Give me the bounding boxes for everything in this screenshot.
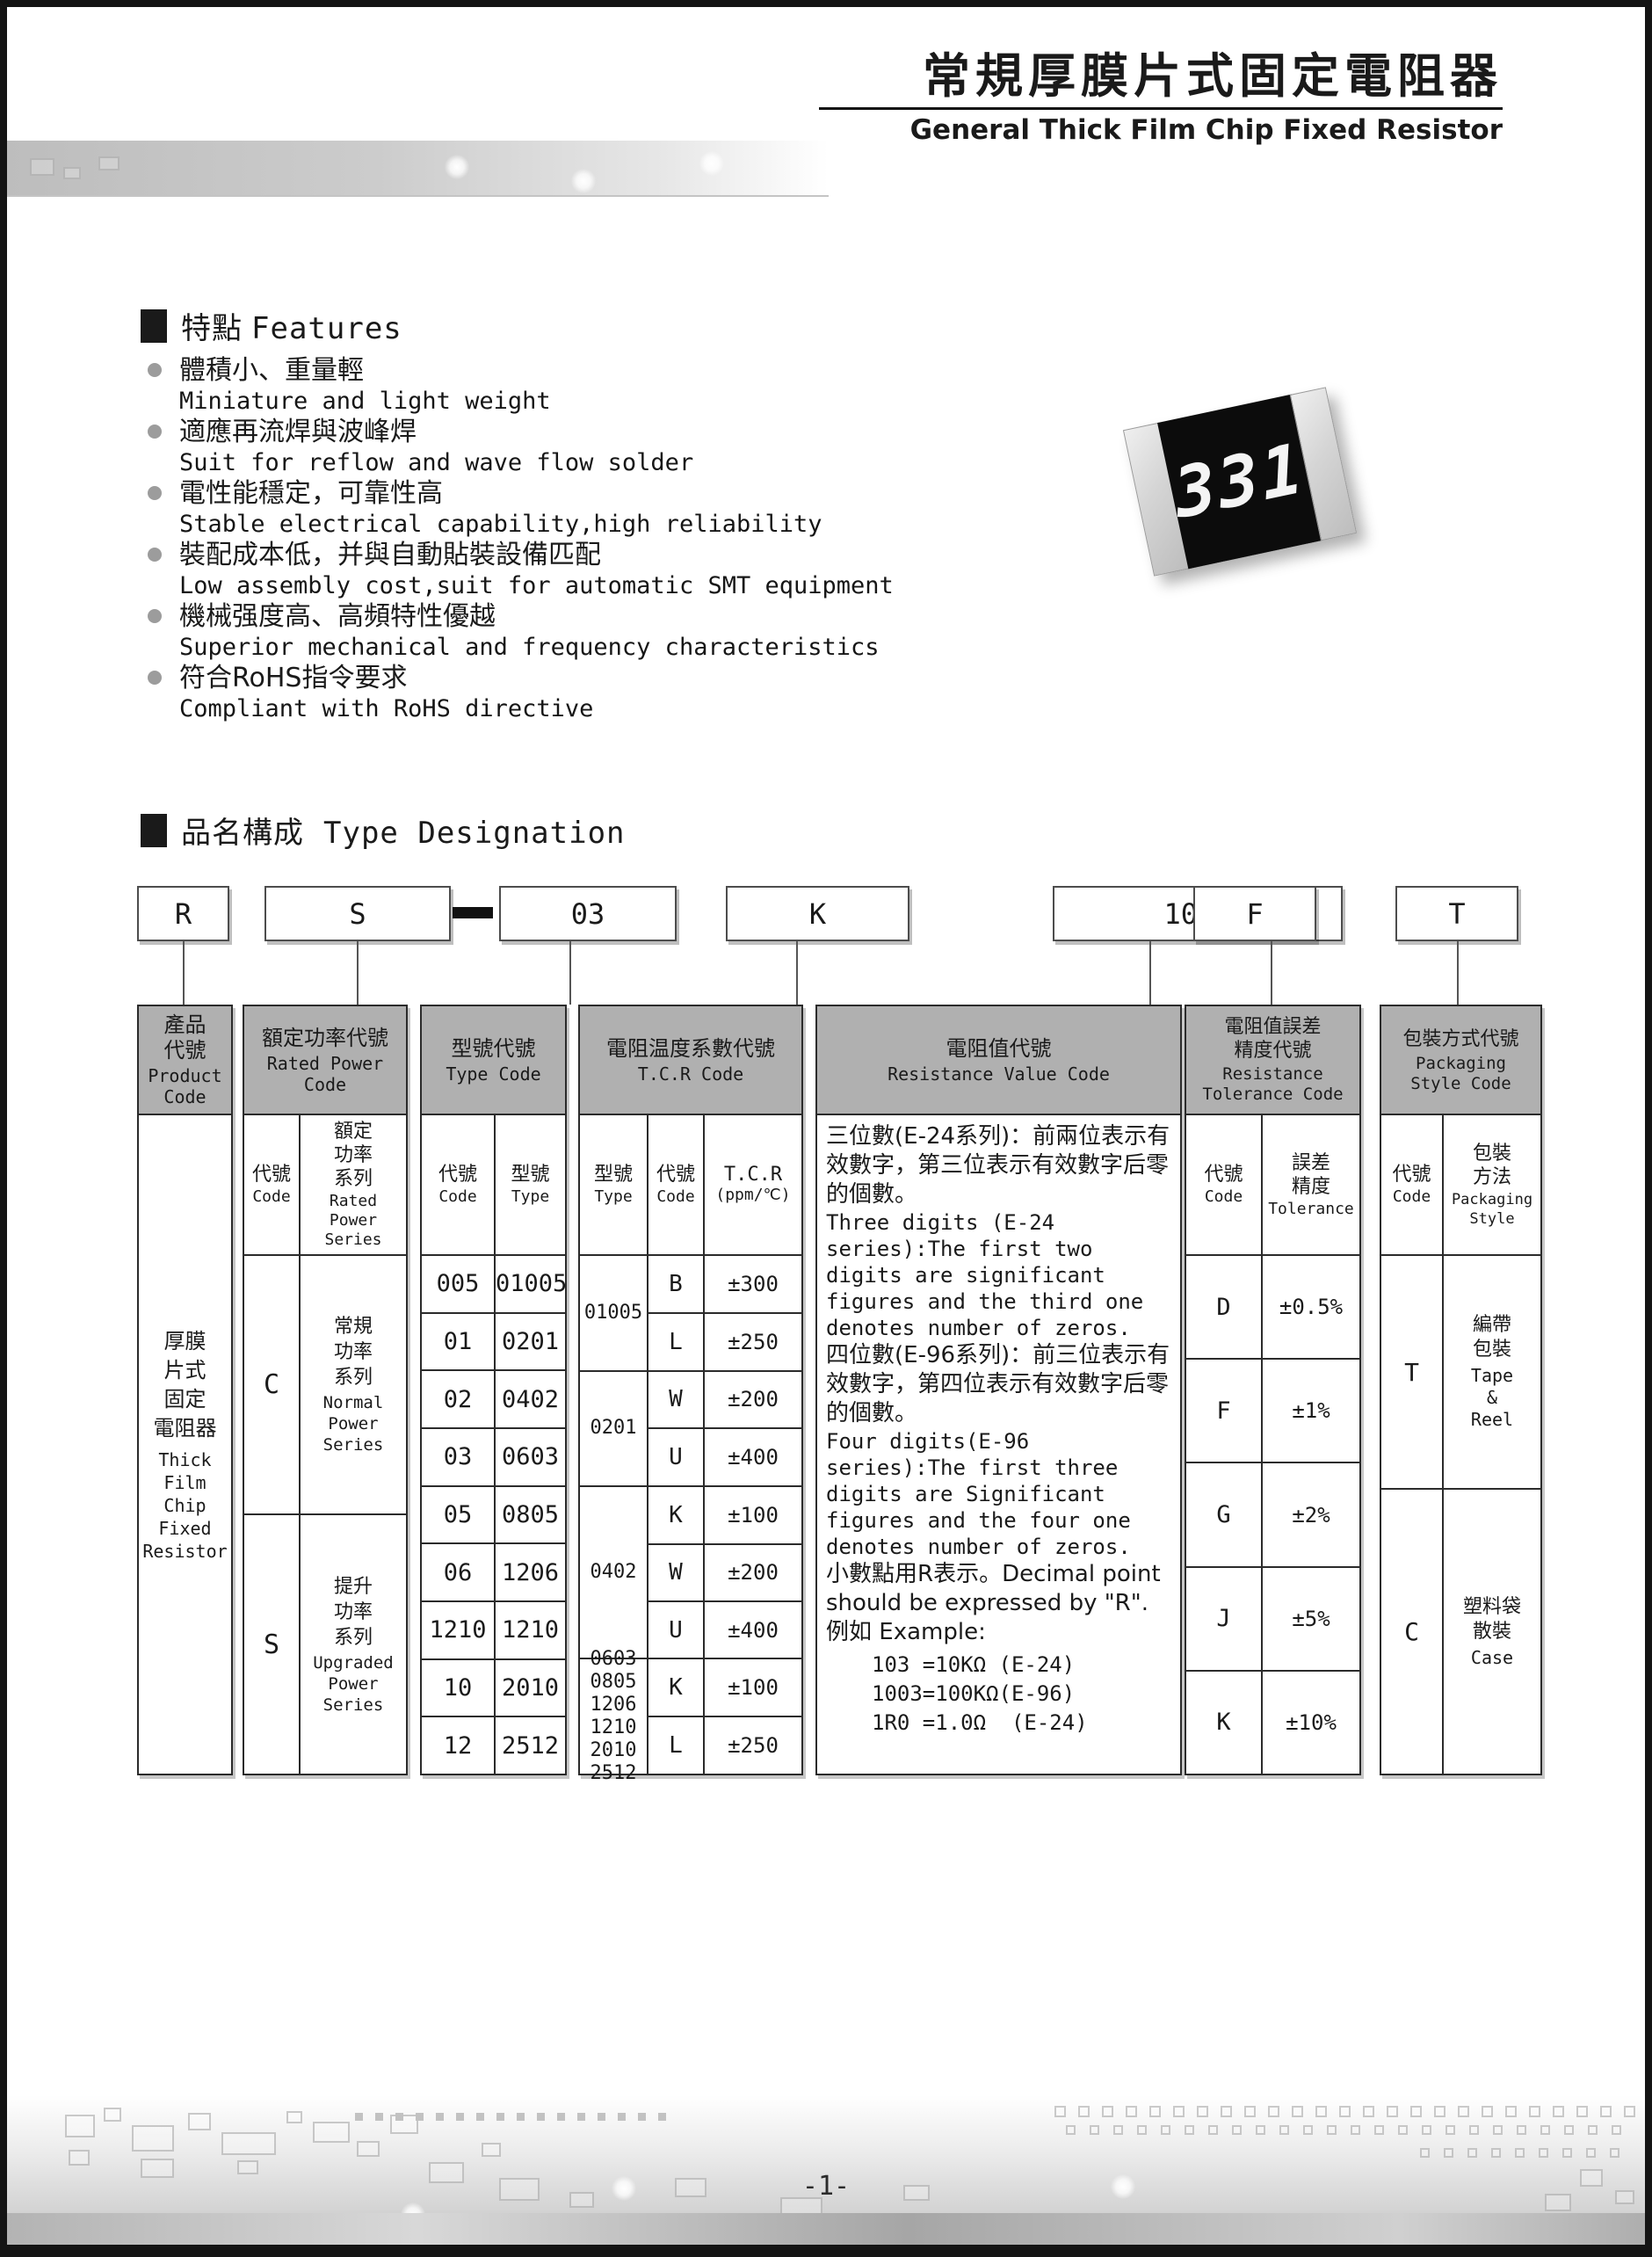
feature-text-en: Superior mechanical and frequency charac… (179, 633, 1132, 663)
tcr-row: W±200 (648, 1543, 801, 1600)
features-heading-en: Features (251, 311, 402, 346)
col-label-en: Packaging Style (1452, 1190, 1532, 1229)
rv-paragraph-mixed: 小數點用R表示。Decimal point should be expresse… (826, 1560, 1171, 1618)
decor-square (496, 2113, 504, 2121)
title-divider (819, 107, 1503, 110)
decor-square (1420, 2148, 1430, 2158)
rated-power-code-cell: C (244, 1256, 301, 1513)
tcr-row: B±300 (648, 1256, 801, 1312)
tcr-row-set: K±100W±200U±400 (648, 1487, 801, 1658)
series-cn: 常規 功率 系列 (334, 1314, 373, 1390)
decor-square (1445, 2125, 1455, 2135)
code-box-tcr: K (726, 886, 909, 941)
decor-square (1467, 2148, 1477, 2158)
decor-square (1517, 2125, 1526, 2135)
feature-item: 電性能穩定，可靠性高 (148, 478, 1132, 510)
tcr-code-cell: U (648, 1602, 705, 1658)
tolerance-row: G±2% (1186, 1462, 1359, 1565)
tcr-value-cell: ±400 (705, 1602, 801, 1658)
type-code-header-cn: 型號代號 (452, 1036, 536, 1062)
tolerance-value-cell: ±1% (1263, 1360, 1359, 1462)
tcr-type-cell: 0402 (580, 1487, 648, 1658)
rv-paragraph-cn: 四位數(E-96系列)：前三位表示有效數字，第四位表示有效數字后零的個數。 (826, 1341, 1171, 1428)
decor-square (1515, 2148, 1525, 2158)
decor-square (1410, 2106, 1422, 2117)
sparkle-dot (743, 2246, 768, 2257)
tolerance-code-cell: J (1186, 1568, 1263, 1670)
decor-square (1173, 2106, 1185, 2117)
rated-power-body: C 常規 功率 系列 Normal Power Series S 提升 功率 系… (244, 1256, 406, 1774)
tolerance-header-en: Resistance Tolerance Code (1202, 1064, 1343, 1105)
connector-line (796, 941, 798, 1005)
square-bullet-icon (141, 309, 167, 343)
tcr-code-cell: K (648, 1487, 705, 1542)
rv-paragraph-en: Three digits (E-24 series):The first two… (826, 1209, 1171, 1341)
type-code-col-code: 代號 Code (422, 1115, 496, 1254)
tolerance-row: F±1% (1186, 1358, 1359, 1462)
decor-square (1588, 2125, 1598, 2135)
bullet-icon (148, 548, 162, 562)
rv-example-lines: 103 =10KΩ (E-24) 1003=100KΩ(E-96) 1R0 =1… (872, 1651, 1171, 1738)
packaging-code-cell: T (1381, 1256, 1444, 1488)
connector-line (1271, 941, 1272, 1005)
table-resistance-value: 電阻值代號 Resistance Value Code 三位數(E-24系列)：… (815, 1005, 1182, 1775)
packaging-row-t: T 編帶 包裝 Tape & Reel (1381, 1256, 1540, 1488)
tcr-col-code: 代號 Code (648, 1115, 705, 1254)
tcr-value-cell: ±250 (705, 1314, 801, 1370)
decor-square (1102, 2106, 1113, 2117)
decor-square (1232, 2125, 1242, 2135)
decor-square (1491, 2148, 1501, 2158)
sparkle-dot (699, 151, 724, 176)
decor-square (1422, 2125, 1431, 2135)
type-code-cell-code: 05 (422, 1487, 496, 1543)
decor-square (1553, 2106, 1564, 2117)
decor-square (577, 2113, 585, 2121)
type-code-row: 050805 (422, 1485, 565, 1543)
tcr-code-cell: L (648, 1717, 705, 1774)
rated-power-code-cell: S (244, 1515, 301, 1774)
tcr-row: U±400 (648, 1427, 801, 1485)
feature-item: 符合RoHS指令要求 (148, 663, 1132, 694)
tolerance-value-cell: ±5% (1263, 1568, 1359, 1670)
col-label-en: Code (438, 1187, 476, 1207)
tcr-code-cell: W (648, 1372, 705, 1428)
col-label-cn: 代號 (1204, 1163, 1243, 1187)
decor-square (1161, 2125, 1170, 2135)
type-designation-heading-cn: 品名構成 (181, 816, 304, 851)
decor-square (1149, 2106, 1161, 2117)
feature-text-cn: 適應再流焊與波峰焊 (179, 417, 417, 448)
type-code-row: 12101210 (422, 1600, 565, 1658)
rv-paragraph-cn: 三位數(E-24系列)：前兩位表示有效數字，第三位表示有效數字后零的個數。 (826, 1122, 1171, 1209)
tolerance-code-cell: F (1186, 1360, 1263, 1462)
type-code-cell-code: 10 (422, 1660, 496, 1716)
decor-square (1078, 2106, 1090, 2117)
rated-power-series-cell: 常規 功率 系列 Normal Power Series (301, 1256, 406, 1513)
code-box-rated-power: S (264, 886, 451, 941)
type-code-cell-type: 1206 (496, 1544, 565, 1600)
col-label-en: Tolerance (1268, 1200, 1354, 1219)
col-label-cn: 代號 (1392, 1163, 1431, 1187)
decor-square (395, 2113, 403, 2121)
type-code-cell-type: 2512 (496, 1717, 565, 1774)
decor-square (1303, 2125, 1313, 2135)
decor-square (1540, 2125, 1550, 2135)
bullet-icon (148, 486, 162, 500)
series-en: Upgraded Power Series (313, 1652, 394, 1716)
decor-square (286, 2111, 302, 2123)
resistor-chip-image: 331 (1123, 387, 1357, 576)
tcr-value-cell: ±200 (705, 1545, 801, 1600)
decor-square (1185, 2125, 1194, 2135)
resistance-value-header-en: Resistance Value Code (888, 1063, 1110, 1085)
decor-square (1292, 2106, 1303, 2117)
packaging-body: T 編帶 包裝 Tape & Reel C 塑料袋 散裝 Case (1381, 1256, 1540, 1774)
resistance-value-body: 三位數(E-24系列)：前兩位表示有效數字，第三位表示有效數字后零的個數。 Th… (817, 1115, 1180, 1774)
type-code-cell-code: 02 (422, 1371, 496, 1427)
decor-square (63, 167, 81, 179)
tolerance-col-code: 代號 Code (1186, 1115, 1263, 1254)
feature-text-cn: 裝配成本低，并與自動貼裝設備匹配 (179, 540, 601, 571)
col-label-cn: 型號 (594, 1163, 633, 1187)
rated-power-header: 額定功率代號 Rated Power Code (244, 1006, 406, 1115)
type-code-row: 00501005 (422, 1256, 565, 1312)
tcr-row: L±250 (648, 1716, 801, 1774)
decor-square (1221, 2106, 1232, 2117)
datasheet-page: 常規厚膜片式固定電阻器 General Thick Film Chip Fixe… (0, 0, 1652, 2257)
rated-power-row-c: C 常規 功率 系列 Normal Power Series (244, 1256, 406, 1513)
decor-square (69, 2150, 90, 2166)
tolerance-header-cn: 電阻值誤差 精度代號 (1224, 1015, 1321, 1063)
tcr-value-cell: ±400 (705, 1429, 801, 1485)
decor-square (1564, 2125, 1574, 2135)
series-en: Normal Power Series (323, 1392, 384, 1455)
type-code-row: 061206 (422, 1542, 565, 1600)
chip-marking-label: 331 (1170, 429, 1309, 535)
code-box-product: R (137, 886, 229, 941)
decor-square (638, 2113, 646, 2121)
col-label-unit: (ppm/℃) (715, 1186, 790, 1205)
decor-square (98, 156, 120, 171)
decor-square (1066, 2125, 1076, 2135)
feature-text-cn: 體積小、重量輕 (179, 355, 364, 387)
bullet-icon (148, 363, 162, 377)
type-code-row: 010201 (422, 1312, 565, 1370)
connector-line (1457, 941, 1459, 1005)
tcr-group: 01005B±300L±250 (580, 1256, 801, 1370)
decor-square (132, 2125, 174, 2152)
col-label-en: Code (1205, 1187, 1243, 1207)
product-header-en: Product Code (148, 1065, 221, 1107)
type-code-cell-type: 01005 (496, 1256, 567, 1312)
decor-square (1208, 2125, 1218, 2135)
bullet-icon (148, 425, 162, 439)
packaging-header: 包裝方式代號 Packaging Style Code (1381, 1006, 1540, 1115)
tcr-header: 電阻温度系數代號 T.C.R Code (580, 1006, 801, 1115)
tcr-rows: 01005B±300L±2500201W±200U±4000402K±100W±… (580, 1256, 801, 1774)
decor-square (1586, 2148, 1596, 2158)
tcr-value-cell: ±300 (705, 1256, 801, 1312)
feature-item: 適應再流焊與波峰焊 (148, 417, 1132, 448)
page-number: -1- (7, 2171, 1645, 2202)
decor-square (517, 2113, 525, 2121)
decor-square (188, 2113, 211, 2130)
tolerance-rows: D±0.5%F±1%G±2%J±5%K±10% (1186, 1256, 1359, 1774)
tcr-group: 0402K±100W±200U±400 (580, 1485, 801, 1658)
product-body-en: Thick Film Chip Fixed Resistor (142, 1448, 227, 1563)
col-label-cn: 包裝 方法 (1473, 1142, 1511, 1189)
packaging-header-en: Packaging Style Code (1410, 1054, 1511, 1094)
bullet-icon (148, 671, 162, 685)
col-label-cn: 型號 (511, 1163, 549, 1187)
tcr-row: L±250 (648, 1312, 801, 1370)
tcr-header-cn: 電阻温度系數代號 (606, 1036, 775, 1062)
tolerance-value-cell: ±2% (1263, 1463, 1359, 1565)
type-designation-heading-text: 品名構成Type Designation (181, 809, 626, 852)
decor-square (313, 2122, 350, 2143)
tolerance-code-cell: K (1186, 1672, 1263, 1774)
features-heading: 特點Features (141, 304, 402, 347)
type-code-cell-code: 03 (422, 1429, 496, 1485)
tcr-value-cell: ±100 (705, 1659, 801, 1716)
type-code-cell-code: 01 (422, 1314, 496, 1370)
decor-square (1339, 2106, 1351, 2117)
decor-square (1482, 2106, 1493, 2117)
bullet-icon (148, 609, 162, 623)
tcr-header-en: T.C.R Code (638, 1063, 743, 1085)
type-code-subheader: 代號 Code 型號 Type (422, 1115, 565, 1256)
table-packaging: 包裝方式代號 Packaging Style Code 代號 Code 包裝 方… (1380, 1005, 1542, 1775)
decor-square (357, 2141, 380, 2157)
tolerance-code-cell: D (1186, 1256, 1263, 1358)
col-label-en: Rated Power Series (324, 1192, 381, 1250)
tcr-type-cell: 0603 0805 1206 1210 2010 2512 (580, 1659, 648, 1774)
tolerance-value-cell: ±10% (1263, 1672, 1359, 1774)
decor-square (1458, 2106, 1469, 2117)
rated-power-col-code: 代號 Code (244, 1115, 301, 1254)
tcr-value-cell: ±250 (705, 1717, 801, 1774)
col-label-en: Code (656, 1187, 694, 1207)
col-label-en: Code (252, 1187, 290, 1207)
page-title-cn: 常規厚膜片式固定電阻器 (923, 51, 1503, 102)
tolerance-col-value: 誤差 精度 Tolerance (1263, 1115, 1359, 1254)
col-label-cn: 額定 功率 系列 (334, 1120, 373, 1191)
decor-square (456, 2113, 464, 2121)
col-label-en: Type (594, 1187, 632, 1207)
features-list: 體積小、重量輕Miniature and light weight適應再流焊與波… (148, 355, 1132, 724)
decor-square (1469, 2125, 1479, 2135)
decor-square (1539, 2148, 1548, 2158)
table-type-code: 型號代號 Type Code 代號 Code 型號 Type 005010050… (420, 1005, 567, 1775)
decor-square (1090, 2125, 1099, 2135)
tcr-group: 0201W±200U±400 (580, 1370, 801, 1486)
type-code-cell-type: 0201 (496, 1314, 565, 1370)
decor-square (1126, 2106, 1137, 2117)
decor-square (1363, 2106, 1374, 2117)
packaging-header-cn: 包裝方式代號 (1402, 1027, 1518, 1052)
decor-square (1387, 2106, 1398, 2117)
feature-item: 機械强度高、高頻特性優越 (148, 601, 1132, 633)
decor-square (1529, 2106, 1540, 2117)
tcr-type-cell: 01005 (580, 1256, 648, 1370)
type-code-cell-type: 1210 (496, 1602, 565, 1658)
connector-line (569, 941, 571, 1005)
type-code-cell-type: 0805 (496, 1487, 565, 1543)
tcr-row: K±100 (648, 1487, 801, 1542)
decor-square (1612, 2125, 1621, 2135)
col-label-en: T.C.R (724, 1165, 782, 1185)
type-code-row: 030603 (422, 1427, 565, 1485)
page-title-en: General Thick Film Chip Fixed Resistor (910, 114, 1503, 146)
series-cn: 提升 功率 系列 (334, 1574, 373, 1651)
table-tolerance: 電阻值誤差 精度代號 Resistance Tolerance Code 代號 … (1185, 1005, 1361, 1775)
tcr-row: W±200 (648, 1372, 801, 1428)
tolerance-subheader: 代號 Code 誤差 精度 Tolerance (1186, 1115, 1359, 1256)
square-bullet-icon (141, 814, 167, 847)
tcr-code-cell: K (648, 1659, 705, 1716)
decor-square (1374, 2125, 1384, 2135)
style-cn: 塑料袋 散裝 (1463, 1595, 1521, 1644)
decor-square (221, 2132, 276, 2155)
connector-line (357, 941, 359, 1005)
decor-square (1197, 2106, 1208, 2117)
type-code-cell-code: 005 (422, 1256, 496, 1312)
product-header-cn: 產品 代號 (164, 1012, 206, 1063)
decor-square (1268, 2106, 1279, 2117)
decor-square (1493, 2125, 1503, 2135)
type-designation-heading-en: Type Designation (323, 816, 626, 851)
tcr-col-value: T.C.R (ppm/℃) (705, 1115, 801, 1254)
decor-square (537, 2113, 545, 2121)
decor-square (1444, 2148, 1453, 2158)
tolerance-header: 電阻值誤差 精度代號 Resistance Tolerance Code (1186, 1006, 1359, 1115)
packaging-col-code: 代號 Code (1381, 1115, 1444, 1254)
decor-square (1054, 2106, 1066, 2117)
tolerance-value-cell: ±0.5% (1263, 1256, 1359, 1358)
decor-square (482, 2143, 501, 2157)
tcr-code-cell: B (648, 1256, 705, 1312)
type-code-cell-type: 0402 (496, 1371, 565, 1427)
decor-square (598, 2113, 605, 2121)
decor-square (375, 2113, 383, 2121)
type-code-row: 122512 (422, 1716, 565, 1774)
table-rated-power: 額定功率代號 Rated Power Code 代號 Code 額定 功率 系列… (243, 1005, 408, 1775)
type-code-cell-code: 12 (422, 1717, 496, 1774)
tolerance-row: J±5% (1186, 1566, 1359, 1670)
features-heading-text: 特點Features (181, 304, 402, 347)
product-body-cn: 厚膜 片式 固定 電阻器 (154, 1327, 217, 1443)
footer-bottom-bar (7, 2213, 1645, 2245)
col-label-cn: 誤差 精度 (1292, 1151, 1330, 1199)
decor-square (1562, 2148, 1572, 2158)
tolerance-code-cell: G (1186, 1463, 1263, 1565)
decor-square (1505, 2106, 1517, 2117)
tcr-type-cell: 0201 (580, 1372, 648, 1486)
col-label-cn: 代號 (438, 1163, 477, 1187)
col-label-en: Code (1393, 1187, 1431, 1207)
feature-text-cn: 電性能穩定，可靠性高 (179, 478, 443, 510)
tcr-code-cell: W (648, 1545, 705, 1600)
feature-item: 體積小、重量輕 (148, 355, 1132, 387)
rated-power-subheader: 代號 Code 額定 功率 系列 Rated Power Series (244, 1115, 406, 1256)
type-code-header-en: Type Code (446, 1063, 540, 1085)
packaging-row-c: C 塑料袋 散裝 Case (1381, 1488, 1540, 1774)
type-designation-heading: 品名構成Type Designation (141, 809, 626, 852)
table-product-code: 產品 代號 Product Code 厚膜 片式 固定 電阻器 Thick Fi… (137, 1005, 233, 1775)
type-code-rows: 0050100501020102040203060305080506120612… (422, 1256, 565, 1774)
sparkle-dot (445, 155, 469, 179)
decor-square (1279, 2125, 1289, 2135)
decor-square (1113, 2125, 1123, 2135)
product-body: 厚膜 片式 固定 電阻器 Thick Film Chip Fixed Resis… (139, 1115, 231, 1774)
tolerance-row: D±0.5% (1186, 1256, 1359, 1358)
rated-power-series-cell: 提升 功率 系列 Upgraded Power Series (301, 1515, 406, 1774)
col-label-cn: 代號 (252, 1163, 291, 1187)
decor-square (65, 2115, 95, 2137)
tcr-row-set: B±300L±250 (648, 1256, 801, 1370)
rv-paragraph-en: Four digits(E-96 series):The first three… (826, 1428, 1171, 1560)
feature-text-cn: 符合RoHS指令要求 (179, 663, 407, 694)
sparkle-dot (571, 169, 596, 193)
dash-separator (453, 907, 493, 918)
type-code-row: 020402 (422, 1369, 565, 1427)
code-box-tolerance: F (1193, 886, 1316, 941)
features-heading-cn: 特點 (181, 311, 243, 346)
decor-square (557, 2113, 565, 2121)
feature-text-en: Suit for reflow and wave flow solder (179, 448, 1132, 478)
code-box-type: 03 (499, 886, 677, 941)
type-code-cell-type: 0603 (496, 1429, 565, 1485)
tcr-row-set: W±200U±400 (648, 1372, 801, 1486)
resistance-value-header-cn: 電阻值代號 (946, 1036, 1052, 1062)
feature-text-cn: 機械强度高、高頻特性優越 (179, 601, 496, 633)
tcr-col-type: 型號 Type (580, 1115, 648, 1254)
connector-line (1149, 941, 1151, 1005)
decor-square (1624, 2106, 1635, 2117)
packaging-style-cell: 塑料袋 散裝 Case (1444, 1490, 1540, 1774)
rated-power-header-cn: 額定功率代號 (262, 1026, 388, 1051)
decor-square (390, 2115, 418, 2134)
product-header: 產品 代號 Product Code (139, 1006, 231, 1115)
rated-power-header-en: Rated Power Code (267, 1053, 383, 1095)
type-code-cell-code: 06 (422, 1544, 496, 1600)
decor-square (1137, 2125, 1147, 2135)
tcr-group: 0603 0805 1206 1210 2010 2512K±100L±250 (580, 1658, 801, 1774)
style-cn: 編帶 包裝 (1473, 1313, 1511, 1362)
type-code-header: 型號代號 Type Code (422, 1006, 565, 1115)
packaging-subheader: 代號 Code 包裝 方法 Packaging Style (1381, 1115, 1540, 1256)
type-code-row: 102010 (422, 1658, 565, 1716)
decor-square (1327, 2125, 1337, 2135)
feature-text-en: Compliant with RoHS directive (179, 694, 1132, 724)
decor-square (1315, 2106, 1327, 2117)
tcr-row: K±100 (648, 1659, 801, 1716)
style-en: Case (1471, 1647, 1513, 1669)
decor-square (1576, 2106, 1588, 2117)
tcr-row: U±400 (648, 1600, 801, 1658)
decor-square (30, 158, 54, 176)
decor-square (416, 2113, 424, 2121)
decor-square (1244, 2106, 1256, 2117)
rated-power-col-series: 額定 功率 系列 Rated Power Series (301, 1115, 406, 1254)
type-code-cell-code: 1210 (422, 1602, 496, 1658)
rv-example-label: 例如 Example: (826, 1618, 1171, 1647)
tcr-subheader: 型號 Type 代號 Code T.C.R (ppm/℃) (580, 1115, 801, 1256)
feature-text-en: Low assembly cost,suit for automatic SMT… (179, 571, 1132, 601)
decor-square (618, 2113, 626, 2121)
packaging-code-cell: C (1381, 1490, 1444, 1774)
